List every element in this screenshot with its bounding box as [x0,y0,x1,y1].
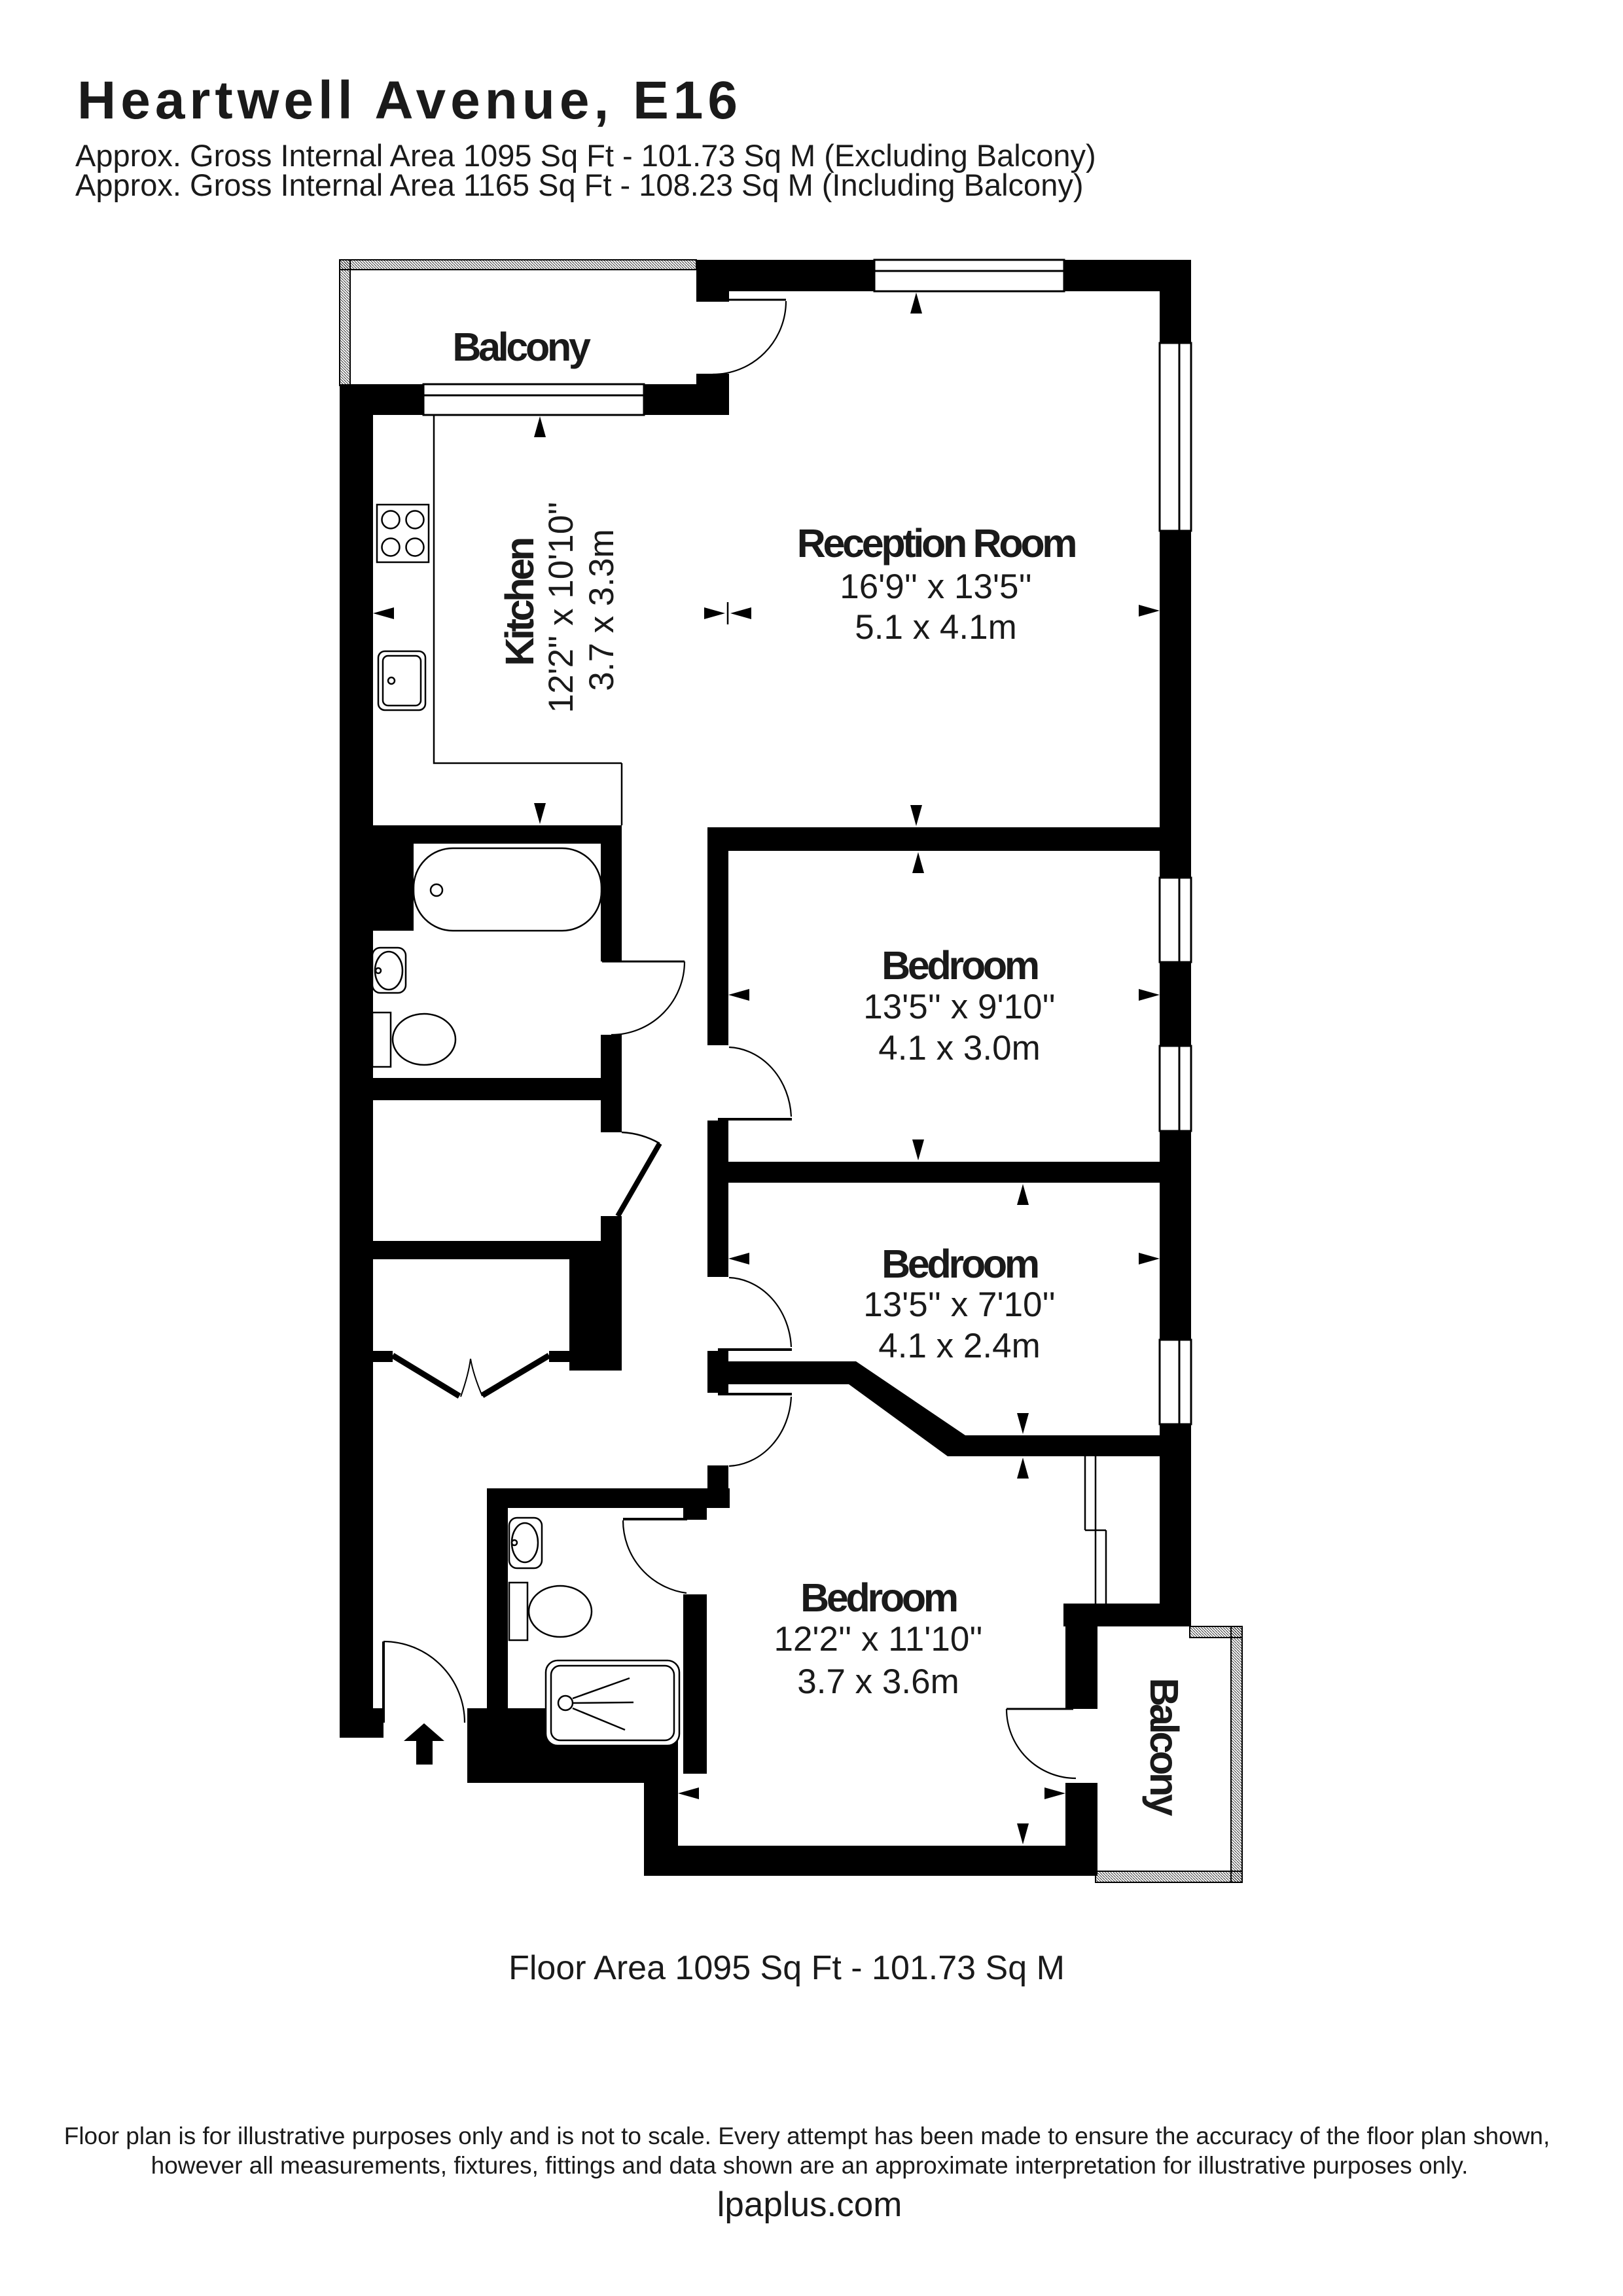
svg-text:3.7 x 3.3m: 3.7 x 3.3m [582,529,621,691]
svg-text:13'5'' x 9'10'': 13'5'' x 9'10'' [863,988,1056,1026]
svg-text:Bedroom: Bedroom [882,1242,1038,1286]
svg-text:4.1 x 2.4m: 4.1 x 2.4m [878,1327,1040,1365]
svg-text:13'5'' x 7'10'': 13'5'' x 7'10'' [863,1285,1056,1324]
svg-text:Bedroom: Bedroom [882,943,1038,988]
svg-text:however all measurements, fixt: however all measurements, fixtures, fitt… [151,2152,1469,2179]
svg-text:4.1 x 3.0m: 4.1 x 3.0m [878,1029,1040,1067]
svg-text:Heartwell Avenue, E16: Heartwell Avenue, E16 [77,71,742,130]
svg-text:Floor plan is for illustrative: Floor plan is for illustrative purposes … [64,2123,1550,2149]
svg-text:Bedroom: Bedroom [800,1575,957,1620]
svg-text:lpaplus.com: lpaplus.com [717,2185,902,2224]
svg-text:Balcony: Balcony [1142,1677,1186,1816]
svg-text:Reception Room: Reception Room [797,521,1075,565]
svg-text:3.7 x 3.6m: 3.7 x 3.6m [797,1662,959,1701]
svg-text:16'9'' x 13'5'': 16'9'' x 13'5'' [840,567,1032,606]
svg-text:Kitchen: Kitchen [497,539,542,666]
svg-text:Floor Area 1095 Sq Ft - 101.73: Floor Area 1095 Sq Ft - 101.73 Sq M [508,1949,1065,1987]
svg-text:12'2'' x 11'10'': 12'2'' x 11'10'' [774,1620,982,1659]
svg-text:Approx. Gross Internal Area 11: Approx. Gross Internal Area 1165 Sq Ft -… [75,168,1084,202]
svg-text:Balcony: Balcony [452,325,591,369]
svg-text:12'2'' x 10'10'': 12'2'' x 10'10'' [542,502,580,713]
svg-text:5.1 x 4.1m: 5.1 x 4.1m [855,608,1016,647]
